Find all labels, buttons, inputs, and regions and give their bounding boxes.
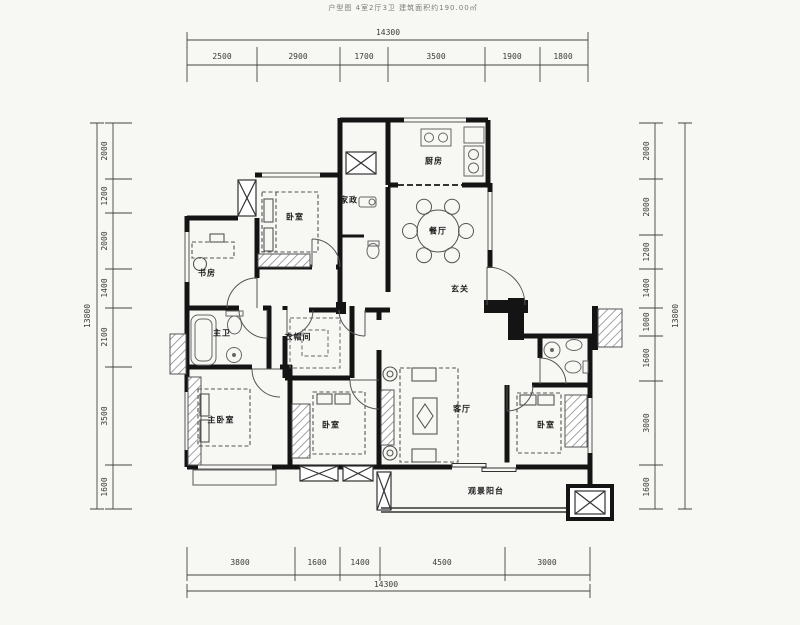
- hatched-fixtures: [170, 254, 622, 465]
- sliding-door: [452, 463, 516, 472]
- balcony: [381, 486, 568, 512]
- study-door: [227, 278, 257, 308]
- master-bedroom-furniture: [193, 389, 276, 485]
- kitchen-fixtures: [421, 127, 484, 176]
- toilet-icon: [226, 311, 243, 316]
- bedroom3-closet: [565, 395, 587, 447]
- master-bath-fixtures: [191, 311, 243, 365]
- desk-icon: [192, 242, 234, 258]
- sink-icon: [566, 340, 582, 351]
- ac-platform: [598, 309, 622, 347]
- wardrobe: [258, 254, 310, 267]
- fridge-icon: [464, 127, 484, 143]
- bedroom3-furniture: [517, 393, 561, 453]
- bed-icon: [198, 389, 250, 446]
- stove-icon: [464, 146, 483, 176]
- bay-window-icon: [300, 466, 338, 481]
- utility-fixtures: [359, 197, 379, 259]
- master-bedroom-door: [252, 369, 280, 397]
- sofa-icon: [400, 368, 458, 462]
- shafts: [238, 152, 391, 510]
- closet-door: [287, 310, 313, 336]
- ac-platform: [170, 334, 186, 374]
- closet-furniture: [290, 318, 340, 368]
- bath2-fixtures: [544, 340, 588, 374]
- bay-window-icon: [343, 466, 373, 481]
- shaft-icon: [238, 180, 256, 216]
- bath2-door: [540, 358, 566, 384]
- master-wardrobe: [188, 377, 201, 465]
- bed-icon: [313, 392, 365, 454]
- tv-cabinet: [381, 390, 394, 445]
- bedroom2-furniture: [313, 392, 365, 454]
- balcony-planter-icon: [377, 472, 391, 510]
- shaft-icon: [346, 152, 376, 174]
- floor-plan-drawing: [0, 0, 800, 625]
- study-furniture: [192, 234, 234, 271]
- toilet-icon: [565, 361, 581, 373]
- elevator-icon: [568, 486, 612, 519]
- chair-icon: [194, 258, 207, 271]
- bedroom1-door: [312, 239, 340, 267]
- flower-bed: [193, 470, 276, 485]
- bedroom1-furniture: [262, 192, 318, 252]
- plant-icon: [383, 367, 397, 381]
- washer-icon: [359, 197, 376, 207]
- floor-plan-page: 户型图 4室2厅3卫 建筑面积约190.00㎡ 厨房家政卧室书房餐厅玄关主卫衣帽…: [0, 0, 800, 625]
- bedroom2-closet: [292, 404, 310, 458]
- dining-table-icon: [403, 199, 474, 262]
- plant-icon: [383, 446, 397, 460]
- kitchen-sink-icon: [421, 129, 451, 146]
- wall-chunks: [336, 298, 598, 350]
